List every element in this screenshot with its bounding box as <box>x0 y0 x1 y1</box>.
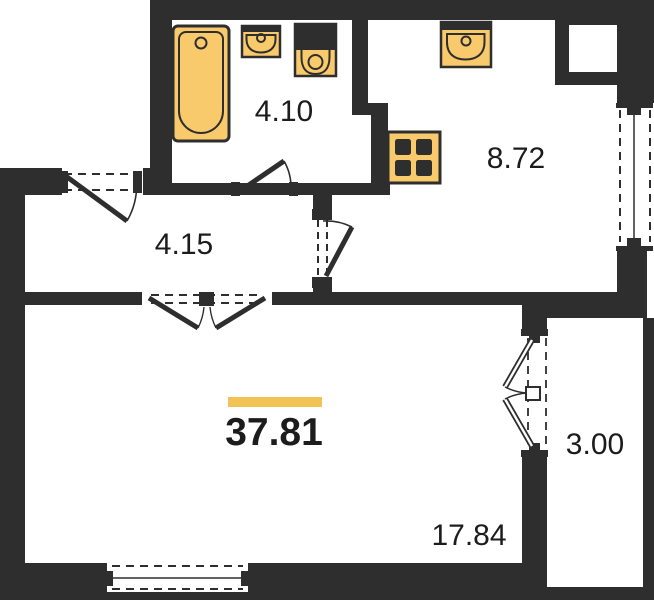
kitchen-window <box>616 103 653 251</box>
bathroom-door <box>231 161 298 196</box>
stove-icon <box>388 132 440 183</box>
toilet-icon <box>295 24 336 76</box>
washbasin-icon <box>242 26 280 57</box>
kitchen-area-label: 8.72 <box>487 142 545 176</box>
bathtub-icon <box>173 26 229 141</box>
bathroom-area-label: 4.10 <box>255 95 313 129</box>
balcony-door <box>505 329 548 457</box>
entrance-door <box>59 171 142 221</box>
balcony-area-label: 3.00 <box>566 428 624 462</box>
living-room-double-door <box>149 292 265 328</box>
total-area-label: 37.81 <box>225 411 323 455</box>
kitchen-sink-icon <box>441 22 491 67</box>
floorplan-graphics <box>0 0 654 600</box>
total-area-highlight <box>228 397 322 407</box>
hallway-area-label: 4.15 <box>155 228 213 262</box>
living-room-window <box>101 566 253 589</box>
floorplan: 4.10 4.15 8.72 17.84 3.00 37.81 <box>0 0 654 600</box>
kitchen-door <box>312 209 352 288</box>
living-room-area-label: 17.84 <box>431 519 506 553</box>
